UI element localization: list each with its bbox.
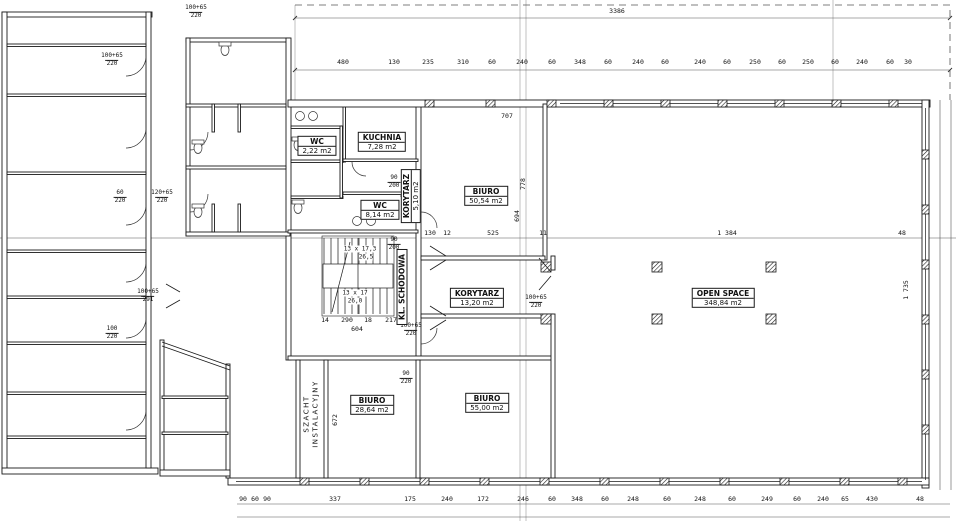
dim-label: 480 [337, 58, 349, 66]
dim-label: 48 [898, 229, 906, 237]
stair-flight-bottom-label: 13 x 17 [342, 290, 367, 297]
room-area: 55,00 m2 [466, 404, 508, 412]
dim-label: 130 [424, 229, 436, 237]
dim-label: 337 [329, 495, 341, 503]
room-name: KORYTARZ [451, 289, 503, 299]
room-name: KORYTARZ [402, 170, 412, 222]
dim-label: 60 [601, 495, 609, 503]
dim-label: 90 [263, 495, 271, 503]
dim-694-vertical: 694 [513, 210, 521, 222]
room-label-biuro-sw: BIURO 28,64 m2 [350, 395, 394, 415]
room-area: 5,10 m2 [412, 170, 420, 222]
stair-flight-top-tread: 26,5 [359, 254, 373, 261]
dim-label: 60 [778, 58, 786, 66]
room-label-open-space: OPEN SPACE 348,84 m2 [692, 288, 755, 308]
dim-label: 60 [728, 495, 736, 503]
dim-label: 250 [802, 58, 814, 66]
dim-label: 217 [385, 316, 397, 324]
dim-label: 14 [321, 316, 329, 324]
dim-label: 248 [627, 495, 639, 503]
room-label-korytarz-small: KORYTARZ 5,10 m2 [401, 169, 421, 223]
room-area: 28,64 m2 [351, 406, 393, 414]
room-area: 348,84 m2 [693, 299, 754, 307]
dim-label: 30 [904, 58, 912, 66]
room-label-biuro-s: BIURO 55,00 m2 [465, 393, 509, 413]
dim-707: 707 [501, 112, 513, 120]
room-label-szacht: SZACHT INSTALACYJNY [303, 380, 322, 448]
door-mark: 120+65220 [151, 190, 173, 204]
room-label-wc-small: WC 2,22 m2 [297, 136, 336, 156]
dim-label: 240 [441, 495, 453, 503]
dim-label: 348 [574, 58, 586, 66]
room-name-line2: INSTALACYJNY [312, 380, 321, 448]
dim-label: 525 [487, 229, 499, 237]
room-area: 8,14 m2 [361, 211, 398, 219]
dim-label: 18 [364, 316, 372, 324]
door-mark: 100+65220 [525, 295, 547, 309]
room-label-korytarz-main: KORYTARZ 13,20 m2 [450, 288, 504, 308]
dim-778-vertical: 778 [519, 178, 527, 190]
door-mark: 100+65291 [137, 289, 159, 303]
dim-stair-total: 604 [351, 325, 363, 333]
room-label-kuchnia: KUCHNIA 7,28 m2 [358, 132, 406, 152]
dim-label: 248 [694, 495, 706, 503]
dim-label: 65 [841, 495, 849, 503]
dim-label: 90 [239, 495, 247, 503]
dim-label: 175 [404, 495, 416, 503]
dim-label: 60 [886, 58, 894, 66]
dim-label: 250 [749, 58, 761, 66]
floor-plan: BIURO 50,54 m2 OPEN SPACE 348,84 m2 BIUR… [0, 0, 956, 521]
room-label-wc-big: WC 8,14 m2 [360, 200, 399, 220]
dim-label: 12 [443, 229, 451, 237]
dim-label: 60 [793, 495, 801, 503]
room-area: 13,20 m2 [451, 299, 503, 307]
dim-label: 130 [388, 58, 400, 66]
dim-label: 60 [548, 58, 556, 66]
dim-label: 240 [817, 495, 829, 503]
dim-label: 172 [477, 495, 489, 503]
room-name-line1: SZACHT [303, 380, 312, 448]
room-area: 7,28 m2 [359, 143, 405, 151]
dim-label: 240 [632, 58, 644, 66]
dim-1735-vertical: 1 735 [902, 280, 910, 300]
room-label-biuro-top: BIURO 50,54 m2 [464, 186, 508, 206]
dim-label: 240 [856, 58, 868, 66]
dim-label: 240 [516, 58, 528, 66]
room-name: BIURO [351, 396, 393, 406]
plan-linework [0, 0, 956, 521]
room-name: BIURO [465, 187, 507, 197]
dim-label: 430 [866, 495, 878, 503]
room-name: OPEN SPACE [693, 289, 754, 299]
door-mark: 100220 [106, 326, 119, 340]
dim-label: 60 [723, 58, 731, 66]
roof-dashed-line [295, 5, 950, 100]
door-mark: 90220 [400, 371, 413, 385]
dim-label: 60 [663, 495, 671, 503]
dim-label: 1 384 [717, 229, 737, 237]
dim-top-total: 3386 [609, 7, 625, 15]
door-mark: 100+65220 [185, 5, 207, 19]
dim-label: 48 [916, 495, 924, 503]
dim-label: 348 [571, 495, 583, 503]
room-label-klatka-schodowa: KL. SCHODOWA [397, 249, 408, 325]
stair-flight-bottom-tread: 26,0 [348, 298, 362, 305]
dim-label: 60 [488, 58, 496, 66]
dim-label: 60 [831, 58, 839, 66]
dim-label: 310 [457, 58, 469, 66]
door-mark: 100+65220 [101, 53, 123, 67]
dim-label: 290 [341, 316, 353, 324]
room-name: WC [298, 137, 335, 147]
dim-672-vertical: 672 [331, 414, 339, 426]
dim-label: 60 [548, 495, 556, 503]
room-name: KUCHNIA [359, 133, 405, 143]
dimension-lines [0, 16, 956, 517]
dim-label: 11 [539, 229, 547, 237]
room-name: KL. SCHODOWA [398, 250, 407, 324]
sanitary-fixtures [192, 42, 376, 226]
dim-label: 60 [604, 58, 612, 66]
room-name: WC [361, 201, 398, 211]
dim-label: 246 [517, 495, 529, 503]
columns [300, 100, 929, 485]
dim-label: 60 [251, 495, 259, 503]
dim-label: 240 [694, 58, 706, 66]
room-name: BIURO [466, 394, 508, 404]
walls [2, 12, 930, 488]
grid-lines [295, 0, 833, 521]
door-mark: 60220 [114, 190, 127, 204]
door-mark: 100+65220 [400, 323, 422, 337]
room-area: 50,54 m2 [465, 197, 507, 205]
dim-label: 235 [422, 58, 434, 66]
dim-label: 60 [661, 58, 669, 66]
dim-label: 249 [761, 495, 773, 503]
room-area: 2,22 m2 [298, 147, 335, 155]
door-mark: 90200 [388, 175, 401, 189]
stair-flight-top-label: 13 x 17,3 [344, 246, 377, 253]
